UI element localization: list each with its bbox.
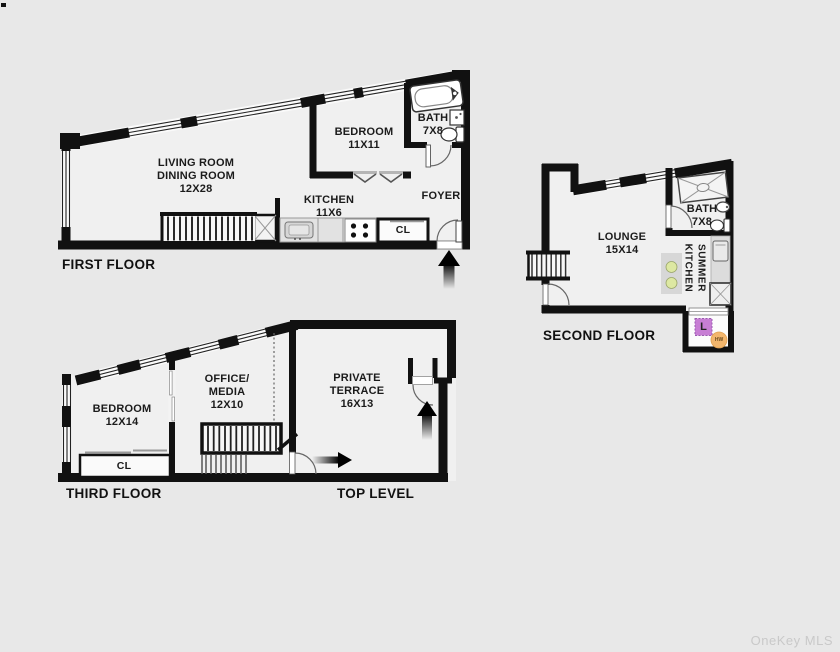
left-window-1 [61, 151, 71, 227]
room-dims: 11X6 [304, 207, 354, 220]
foyer-label: FOYER [422, 190, 461, 203]
stove-icon [345, 219, 376, 242]
stairs-first-floor [160, 213, 257, 241]
room-dims: 12X14 [93, 416, 152, 429]
private-terrace-label: PRIVATE TERRACE 16X13 [330, 372, 385, 410]
living-dining-label: LIVING ROOM DINING ROOM 12X28 [157, 157, 235, 195]
hot-water-label: HW [715, 337, 723, 343]
room-name: KITCHEN [304, 194, 354, 207]
floorplan-page: LIVING ROOM DINING ROOM 12X28 BEDROOM 11… [0, 0, 840, 652]
up-arrow-first-floor [438, 250, 460, 289]
floorplan-canvas [0, 0, 840, 652]
burner-icon [666, 278, 677, 289]
bedroom-label-first: BEDROOM 11X11 [335, 126, 394, 152]
top-level-title: TOP LEVEL [337, 486, 414, 501]
bath-label-first: BATH 7X8 [418, 112, 449, 138]
kitchen-counter [280, 218, 377, 242]
room-name: SUMMER [694, 244, 707, 293]
second-floor-title: SECOND FLOOR [543, 328, 655, 343]
dumbwaiter-xbox-1 [254, 215, 276, 241]
room-dims: 7X8 [418, 125, 449, 138]
room-dims: 7X8 [687, 216, 718, 229]
stairs-second-floor [526, 251, 570, 280]
bath-label-second: BATH 7X8 [687, 203, 718, 229]
room-dims: 11X11 [335, 139, 394, 152]
room-name: CL [117, 460, 131, 472]
watermark: OneKey MLS [751, 633, 833, 648]
closet-label-first: CL [396, 224, 410, 236]
burner-icon [666, 262, 677, 273]
room-name: OFFICE/ [205, 373, 250, 386]
summer-kitchen-label: SUMMER KITCHEN [682, 244, 707, 293]
room-name: BATH [418, 112, 449, 125]
room-name: BEDROOM [335, 126, 394, 139]
room-dims: 12X28 [157, 183, 235, 196]
room-dims: 16X13 [330, 398, 385, 411]
bedroom-label-third: BEDROOM 12X14 [93, 403, 152, 429]
room-name: PRIVATE [330, 372, 385, 385]
room-dims: 15X14 [598, 244, 646, 257]
closet-label-third: CL [117, 460, 131, 472]
first-floor-title: FIRST FLOOR [62, 257, 155, 272]
kitchen-label: KITCHEN 11X6 [304, 194, 354, 220]
room-name: DINING ROOM [157, 170, 235, 183]
shower-icon [678, 172, 729, 203]
bath-sink-icon-1 [450, 110, 464, 125]
room-name: CL [396, 224, 410, 236]
lounge-label: LOUNGE 15X14 [598, 231, 646, 257]
laundry-label: L [700, 321, 707, 333]
corner-artifact [1, 3, 6, 7]
room-name: FOYER [422, 190, 461, 203]
kitchen-sink-icon [285, 222, 313, 240]
room-dims: 12X10 [205, 399, 250, 412]
laundry-room [683, 308, 734, 352]
room-name: BEDROOM [93, 403, 152, 416]
room-name: LIVING ROOM [157, 157, 235, 170]
room-name: KITCHEN [682, 244, 695, 293]
third-floor-plan [58, 320, 456, 481]
office-media-label: OFFICE/ MEDIA 12X10 [205, 373, 250, 411]
bath-sink-icon-2 [717, 202, 730, 212]
summer-kitchen-xbox [710, 283, 731, 305]
room-name: MEDIA [205, 386, 250, 399]
third-floor-title: THIRD FLOOR [66, 486, 162, 501]
room-name: TERRACE [330, 385, 385, 398]
room-name: LOUNGE [598, 231, 646, 244]
room-name: BATH [687, 203, 718, 216]
